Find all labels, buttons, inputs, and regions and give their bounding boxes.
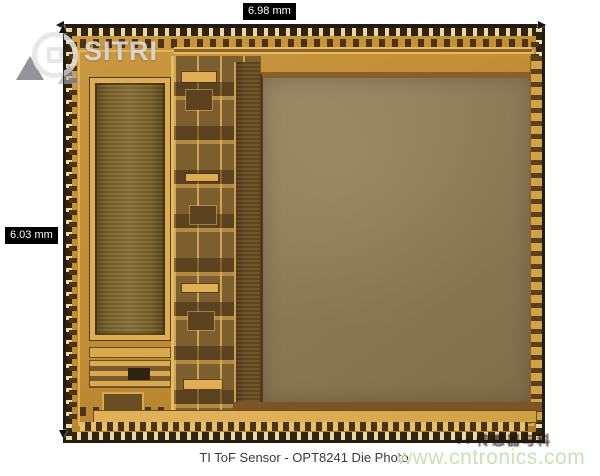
dimension-line-vertical [63, 25, 64, 443]
figure-canvas: SITRI 6.98 mm 6.03 mm 传感器与科 TI ToF Senso… [0, 0, 600, 476]
arrow-up-icon [59, 25, 67, 33]
row-driver-strip [234, 62, 260, 402]
sitri-logo-text: SITRI [84, 36, 158, 67]
memory-block [90, 78, 170, 340]
height-dimension-label: 6.03 mm [5, 227, 58, 244]
site-watermark: www.cntronics.com [397, 446, 585, 470]
cn-watermark-icon [455, 436, 473, 445]
width-dimension-label: 6.98 mm [243, 3, 296, 20]
pad-band-right [530, 56, 542, 422]
readout-strip [233, 402, 542, 411]
cn-watermark: 传感器与科 [455, 430, 552, 449]
sitri-triangle-small-icon [58, 64, 80, 84]
circuit-strip [90, 348, 170, 357]
cn-watermark-text: 传感器与科 [477, 433, 552, 448]
arrow-down-icon [59, 430, 67, 438]
routing-lines-top [174, 47, 532, 54]
routing-strip-bottom [94, 411, 536, 422]
circuit-block-dark [128, 368, 150, 380]
dimension-line-horizontal [63, 24, 545, 25]
pixel-array [260, 72, 530, 402]
circuit-block [102, 392, 144, 412]
bond-pad-column-left [69, 42, 77, 426]
sitri-watermark: SITRI [16, 30, 176, 92]
arrow-right-icon [538, 21, 546, 29]
